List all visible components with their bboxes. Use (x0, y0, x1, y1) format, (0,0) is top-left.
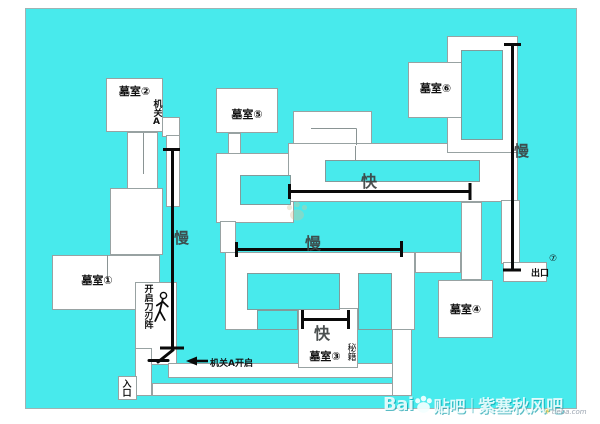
exit-label: 出口 (531, 266, 549, 279)
exit-number-label: ⑦ (549, 254, 557, 264)
path-exit-column (501, 200, 520, 264)
watermark-brand-prefix: Bai (383, 394, 414, 415)
path-corridor-a (166, 135, 180, 207)
tomb-map-page: 墓室① 墓室② 墓室③ 墓室④ 墓室⑤ 墓室⑥ 机关A 开启刀刃阵 机关A开启 … (0, 0, 600, 424)
blade-trap-label: 开启刀刃阵 (142, 284, 151, 332)
path-connector-c (220, 221, 236, 253)
site-watermark-text: tieba.com (552, 408, 587, 416)
room6-label: 墓室⑥ (408, 80, 463, 96)
wall-island-u3 (257, 310, 298, 330)
room1-label: 墓室① (52, 272, 142, 288)
baidu-paw-icon (414, 394, 433, 413)
fast-room3-label: 快 (314, 320, 330, 344)
entrance-label: 入口 (120, 379, 129, 401)
site-watermark: ✳ tieba.com (544, 407, 587, 416)
slow-left-label: 慢 (174, 227, 189, 248)
path-room4-column (461, 202, 482, 280)
path-room2-lower (127, 132, 158, 190)
mech-a-open-label: 机关A开启 (210, 356, 253, 369)
wall-island-u1 (247, 273, 340, 310)
slow-mid-label: 慢 (305, 230, 321, 254)
path-bottom-corridor-1 (168, 363, 393, 378)
wall-island-u2 (358, 273, 392, 330)
room3-label: 墓室③ (298, 348, 352, 364)
slow-right-label: 慢 (514, 140, 529, 161)
fast-mid-label: 快 (361, 168, 377, 192)
wall-island-s (240, 175, 291, 205)
baidu-tieba-watermark: Bai 贴吧 | 紫塞秋风吧 (383, 392, 563, 417)
path-room5-stub (228, 133, 241, 155)
room4-label: 墓室④ (438, 301, 493, 317)
wall-island-1 (325, 160, 480, 182)
path-block-a (110, 188, 163, 255)
path-flag (293, 111, 372, 146)
path-band-e (415, 252, 461, 273)
path-bottom-corridor-2 (152, 383, 412, 396)
wall-island-room6 (461, 50, 503, 140)
room5-label: 墓室⑤ (216, 106, 278, 122)
path-entrance-column (135, 348, 152, 396)
mech-a-label: 机关A (151, 99, 160, 135)
watermark-brand-suffix: 贴吧 (434, 393, 466, 417)
site-watermark-star-icon: ✳ (544, 407, 551, 416)
path-room2-notch (162, 117, 180, 137)
secret-label: 秘籍 (345, 343, 354, 365)
room2-label: 墓室② (106, 83, 163, 99)
watermark-divider: | (470, 397, 475, 413)
